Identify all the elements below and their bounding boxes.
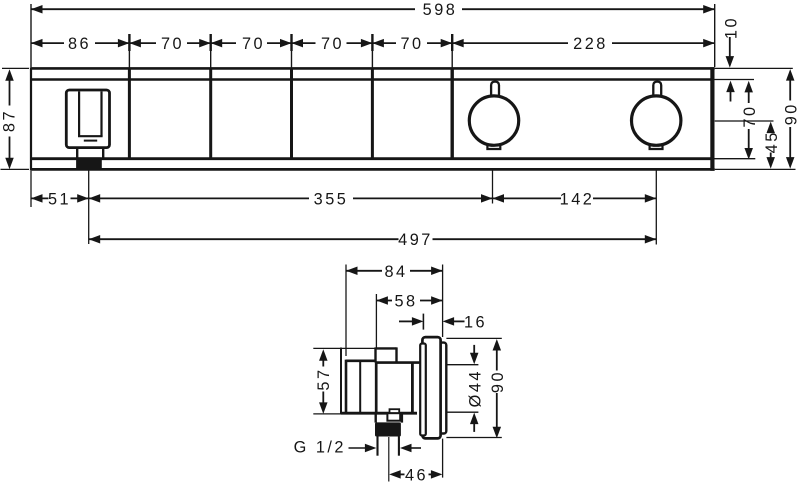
svg-text:10: 10 — [723, 16, 741, 39]
svg-text:57: 57 — [315, 367, 333, 390]
svg-text:84: 84 — [384, 263, 407, 281]
svg-text:70: 70 — [400, 35, 423, 53]
svg-text:70: 70 — [161, 35, 184, 53]
svg-text:90: 90 — [489, 370, 507, 393]
svg-text:86: 86 — [68, 35, 91, 53]
svg-text:355: 355 — [314, 190, 349, 208]
svg-text:45: 45 — [763, 130, 781, 153]
svg-text:142: 142 — [560, 190, 595, 208]
svg-text:497: 497 — [398, 231, 433, 249]
svg-text:Ø44: Ø44 — [466, 369, 484, 407]
svg-text:70: 70 — [321, 35, 344, 53]
svg-text:87: 87 — [1, 109, 19, 132]
svg-text:16: 16 — [464, 313, 487, 331]
svg-text:58: 58 — [394, 293, 417, 311]
svg-text:70: 70 — [741, 104, 759, 127]
svg-text:51: 51 — [48, 190, 71, 208]
svg-text:90: 90 — [782, 102, 800, 125]
svg-text:G 1/2: G 1/2 — [294, 439, 346, 457]
svg-text:70: 70 — [242, 35, 265, 53]
svg-text:598: 598 — [423, 1, 458, 19]
svg-text:46: 46 — [405, 466, 428, 483]
svg-text:228: 228 — [573, 35, 608, 53]
